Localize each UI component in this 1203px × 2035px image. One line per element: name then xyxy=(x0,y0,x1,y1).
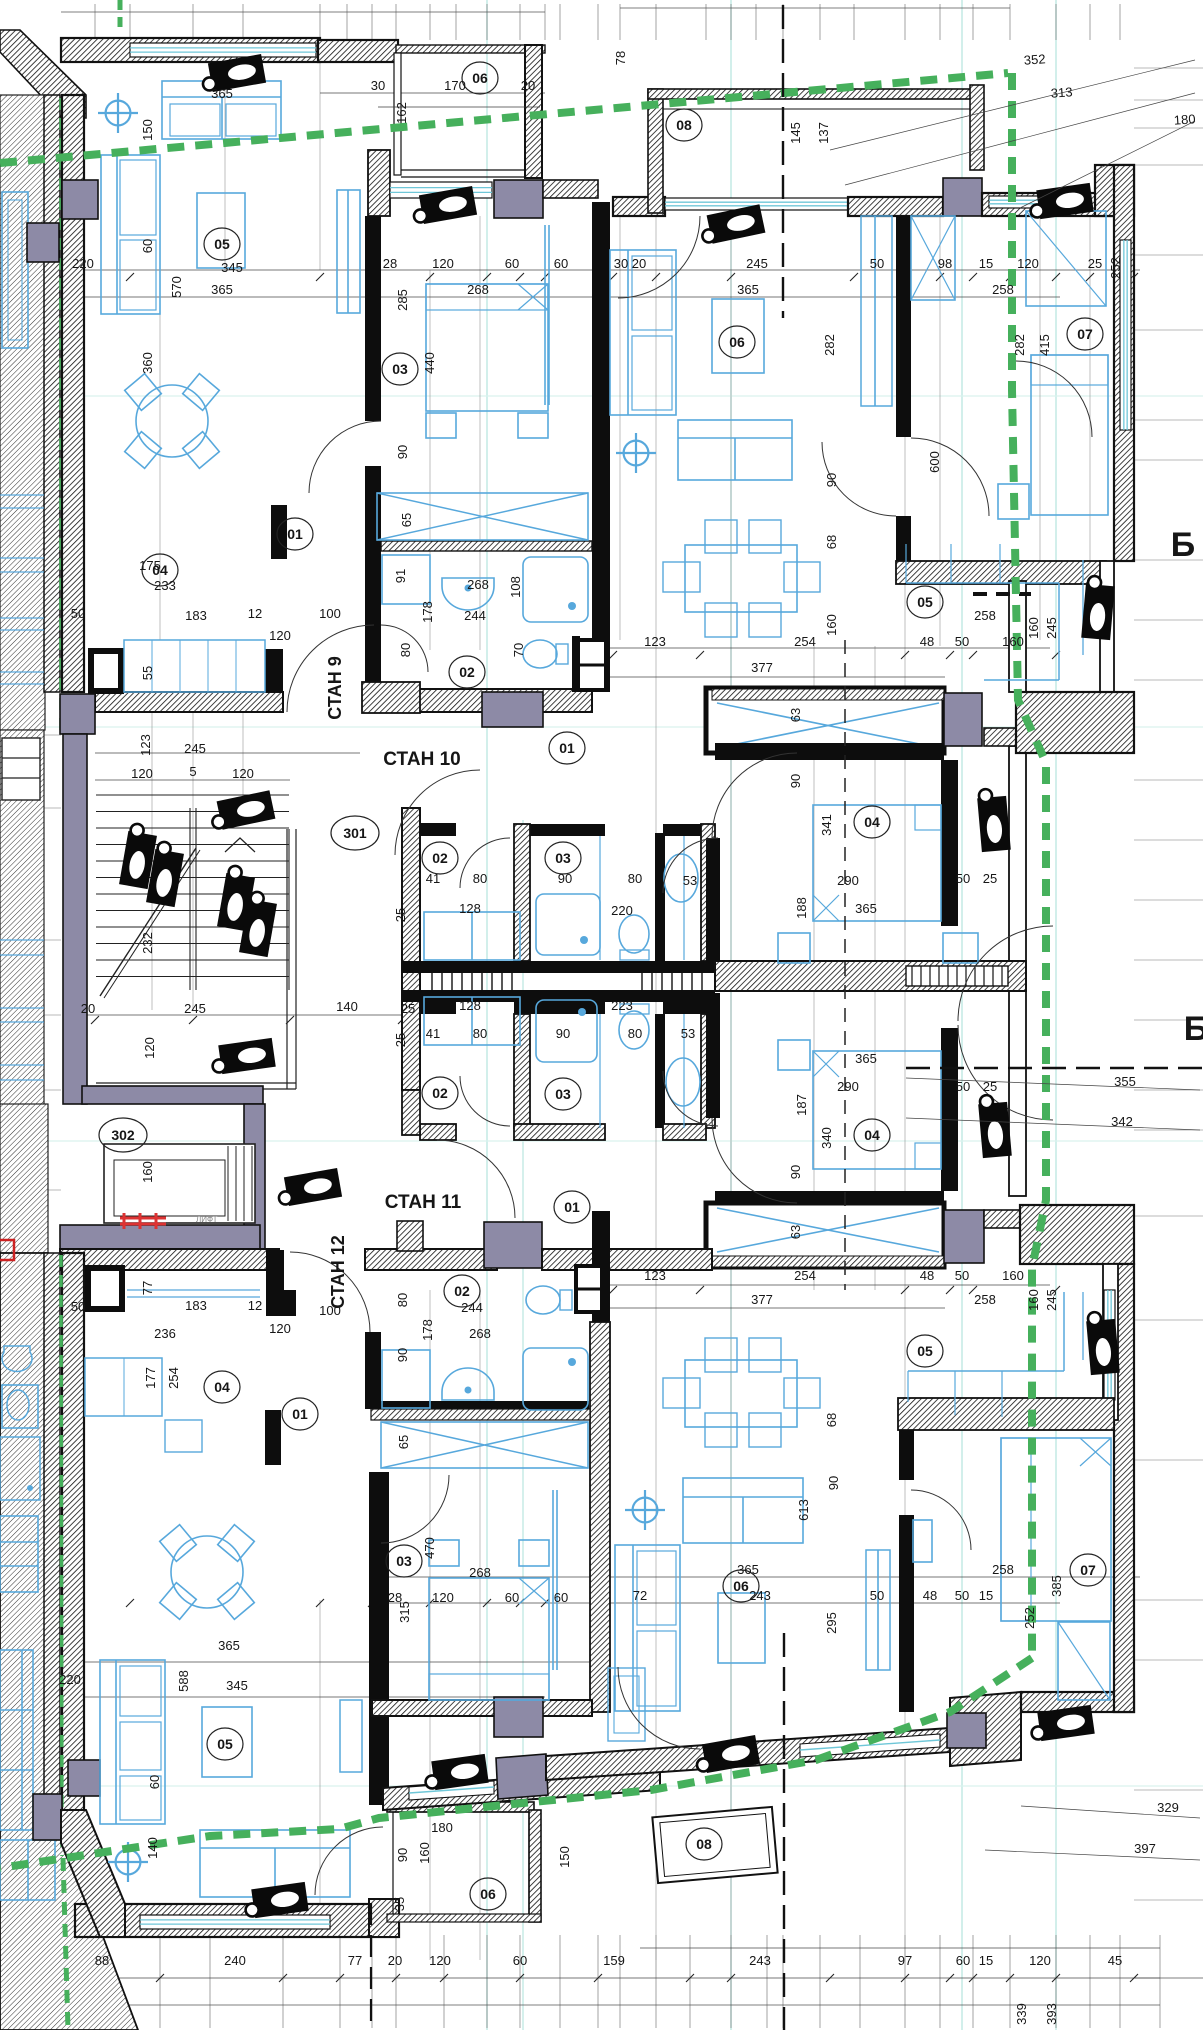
svg-text:70: 70 xyxy=(511,643,526,657)
svg-text:365: 365 xyxy=(737,1562,759,1577)
svg-text:245: 245 xyxy=(1044,1289,1059,1311)
svg-text:12: 12 xyxy=(248,606,262,621)
svg-text:02: 02 xyxy=(454,1283,470,1299)
svg-text:06: 06 xyxy=(733,1578,749,1594)
svg-text:295: 295 xyxy=(824,1612,839,1634)
svg-text:170: 170 xyxy=(444,78,466,93)
svg-text:06: 06 xyxy=(480,1886,496,1902)
svg-text:613: 613 xyxy=(796,1499,811,1521)
svg-text:СТАН 11: СТАН 11 xyxy=(385,1192,462,1213)
svg-text:48: 48 xyxy=(920,634,934,649)
svg-text:120: 120 xyxy=(1017,256,1039,271)
svg-text:65: 65 xyxy=(396,1435,411,1449)
svg-text:60: 60 xyxy=(554,256,568,271)
svg-text:108: 108 xyxy=(508,576,523,598)
svg-text:60: 60 xyxy=(554,1590,568,1605)
svg-text:220: 220 xyxy=(72,256,94,271)
svg-text:06: 06 xyxy=(472,70,488,86)
svg-text:302: 302 xyxy=(111,1127,135,1143)
svg-text:50: 50 xyxy=(955,1268,969,1283)
svg-text:90: 90 xyxy=(395,445,410,459)
svg-text:80: 80 xyxy=(398,643,413,657)
svg-text:90: 90 xyxy=(788,1165,803,1179)
svg-text:240: 240 xyxy=(224,1953,246,1968)
svg-text:06: 06 xyxy=(729,334,745,350)
svg-text:268: 268 xyxy=(467,577,489,592)
svg-text:08: 08 xyxy=(696,1836,712,1852)
svg-text:258: 258 xyxy=(974,608,996,623)
svg-text:20: 20 xyxy=(81,1001,95,1016)
svg-text:15: 15 xyxy=(979,256,993,271)
svg-text:01: 01 xyxy=(292,1406,308,1422)
svg-text:78: 78 xyxy=(613,51,628,65)
svg-text:98: 98 xyxy=(938,256,952,271)
svg-text:08: 08 xyxy=(676,117,692,133)
svg-text:05: 05 xyxy=(217,1736,233,1752)
svg-text:20: 20 xyxy=(388,1953,402,1968)
svg-text:07: 07 xyxy=(1077,326,1093,342)
svg-text:45: 45 xyxy=(1108,1953,1122,1968)
svg-text:150: 150 xyxy=(140,119,155,141)
svg-text:50: 50 xyxy=(870,1588,884,1603)
svg-text:282: 282 xyxy=(822,334,837,356)
svg-text:30: 30 xyxy=(371,78,385,93)
svg-text:04: 04 xyxy=(214,1379,230,1395)
svg-text:341: 341 xyxy=(819,814,834,836)
svg-text:140: 140 xyxy=(336,999,358,1014)
svg-text:345: 345 xyxy=(226,1678,248,1693)
svg-text:03: 03 xyxy=(555,1086,571,1102)
svg-text:68: 68 xyxy=(824,1413,839,1427)
svg-text:123: 123 xyxy=(138,734,153,756)
svg-text:245: 245 xyxy=(746,256,768,271)
svg-text:137: 137 xyxy=(816,122,831,144)
svg-text:25: 25 xyxy=(393,1033,408,1047)
svg-text:236: 236 xyxy=(154,1326,176,1341)
svg-text:123: 123 xyxy=(644,1268,666,1283)
svg-text:41: 41 xyxy=(426,1026,440,1041)
svg-text:254: 254 xyxy=(794,634,816,649)
svg-text:301: 301 xyxy=(343,825,367,841)
svg-text:150: 150 xyxy=(557,1846,572,1868)
svg-text:88: 88 xyxy=(95,1953,109,1968)
svg-text:377: 377 xyxy=(751,660,773,675)
svg-text:254: 254 xyxy=(794,1268,816,1283)
svg-text:СТАН 12: СТАН 12 xyxy=(328,1235,348,1308)
svg-text:55: 55 xyxy=(140,666,155,680)
svg-text:285: 285 xyxy=(395,289,410,311)
svg-text:90: 90 xyxy=(826,1476,841,1490)
svg-text:68: 68 xyxy=(824,535,839,549)
svg-text:377: 377 xyxy=(751,1292,773,1307)
svg-text:25: 25 xyxy=(1088,256,1102,271)
svg-text:01: 01 xyxy=(564,1199,580,1215)
svg-text:470: 470 xyxy=(422,1537,437,1559)
svg-text:244: 244 xyxy=(461,1300,483,1315)
svg-text:159: 159 xyxy=(603,1953,625,1968)
svg-text:252: 252 xyxy=(1022,1607,1037,1629)
svg-text:128: 128 xyxy=(459,998,481,1013)
svg-text:77: 77 xyxy=(140,1281,155,1295)
svg-text:120: 120 xyxy=(232,766,254,781)
svg-text:440: 440 xyxy=(422,352,437,374)
svg-text:80: 80 xyxy=(473,871,487,886)
svg-text:160: 160 xyxy=(824,614,839,636)
svg-text:232: 232 xyxy=(140,932,155,954)
svg-text:415: 415 xyxy=(1037,334,1052,356)
svg-text:04: 04 xyxy=(864,1127,880,1143)
svg-text:05: 05 xyxy=(214,236,230,252)
svg-text:15: 15 xyxy=(979,1588,993,1603)
svg-text:25: 25 xyxy=(983,871,997,886)
svg-text:187: 187 xyxy=(794,1094,809,1116)
svg-text:53: 53 xyxy=(681,1026,695,1041)
svg-text:160: 160 xyxy=(1002,634,1024,649)
svg-text:258: 258 xyxy=(974,1292,996,1307)
svg-text:Б: Б xyxy=(1184,1010,1203,1048)
svg-text:53: 53 xyxy=(683,873,697,888)
svg-text:258: 258 xyxy=(992,282,1014,297)
svg-text:ЛИФТ: ЛИФТ xyxy=(196,1215,218,1224)
svg-text:245: 245 xyxy=(1044,617,1059,639)
svg-text:02: 02 xyxy=(459,664,475,680)
svg-text:244: 244 xyxy=(464,608,486,623)
svg-text:352: 352 xyxy=(1023,51,1046,67)
svg-text:72: 72 xyxy=(633,1588,647,1603)
svg-text:01: 01 xyxy=(287,526,303,542)
svg-text:28: 28 xyxy=(383,256,397,271)
svg-text:329: 329 xyxy=(1157,1800,1179,1815)
svg-text:188: 188 xyxy=(794,897,809,919)
svg-text:СТАН 10: СТАН 10 xyxy=(383,749,461,770)
svg-text:223: 223 xyxy=(611,998,633,1013)
svg-text:90: 90 xyxy=(395,1848,410,1862)
svg-text:20: 20 xyxy=(521,78,535,93)
svg-text:90: 90 xyxy=(395,1348,410,1362)
svg-text:120: 120 xyxy=(131,766,153,781)
svg-text:100: 100 xyxy=(319,606,341,621)
svg-text:СТАН 9: СТАН 9 xyxy=(325,656,345,719)
svg-text:03: 03 xyxy=(396,1553,412,1569)
svg-text:50: 50 xyxy=(71,1299,85,1314)
svg-text:233: 233 xyxy=(154,578,176,593)
svg-text:120: 120 xyxy=(429,1953,451,1968)
svg-text:178: 178 xyxy=(420,601,435,623)
svg-text:60: 60 xyxy=(140,239,155,253)
svg-text:35: 35 xyxy=(392,1897,407,1911)
svg-text:162: 162 xyxy=(394,102,409,124)
svg-text:177: 177 xyxy=(143,1367,158,1389)
svg-text:254: 254 xyxy=(166,1367,181,1389)
svg-text:160: 160 xyxy=(417,1842,432,1864)
svg-text:243: 243 xyxy=(749,1588,771,1603)
svg-text:268: 268 xyxy=(469,1565,491,1580)
svg-text:313: 313 xyxy=(1050,84,1073,100)
svg-text:600: 600 xyxy=(927,451,942,473)
svg-text:02: 02 xyxy=(432,850,448,866)
svg-text:41: 41 xyxy=(426,871,440,886)
svg-text:183: 183 xyxy=(185,1298,207,1313)
svg-text:120: 120 xyxy=(269,628,291,643)
svg-text:90: 90 xyxy=(788,774,803,788)
svg-text:80: 80 xyxy=(473,1026,487,1041)
svg-text:268: 268 xyxy=(467,282,489,297)
svg-text:570: 570 xyxy=(169,276,184,298)
svg-text:245: 245 xyxy=(184,1001,206,1016)
svg-text:50: 50 xyxy=(71,606,85,621)
svg-text:120: 120 xyxy=(1029,1953,1051,1968)
svg-text:345: 345 xyxy=(221,260,243,275)
svg-text:220: 220 xyxy=(611,903,633,918)
svg-text:25: 25 xyxy=(393,908,408,922)
svg-text:268: 268 xyxy=(469,1326,491,1341)
svg-text:252: 252 xyxy=(1108,257,1123,279)
svg-text:05: 05 xyxy=(917,594,933,610)
svg-text:60: 60 xyxy=(147,1775,162,1789)
svg-text:60: 60 xyxy=(505,256,519,271)
svg-text:123: 123 xyxy=(644,634,666,649)
svg-text:91: 91 xyxy=(393,569,408,583)
svg-text:160: 160 xyxy=(1002,1268,1024,1283)
svg-text:175: 175 xyxy=(139,558,161,573)
svg-text:220: 220 xyxy=(59,1672,81,1687)
svg-text:120: 120 xyxy=(142,1037,157,1059)
svg-text:385: 385 xyxy=(1049,1575,1064,1597)
svg-text:90: 90 xyxy=(558,871,572,886)
svg-text:365: 365 xyxy=(855,1051,877,1066)
svg-text:12: 12 xyxy=(248,1298,262,1313)
svg-text:80: 80 xyxy=(395,1293,410,1307)
svg-text:360: 360 xyxy=(140,352,155,374)
svg-text:145: 145 xyxy=(788,122,803,144)
svg-text:48: 48 xyxy=(920,1268,934,1283)
svg-text:160: 160 xyxy=(140,1161,155,1183)
svg-text:90: 90 xyxy=(556,1026,570,1041)
svg-text:365: 365 xyxy=(737,282,759,297)
svg-text:120: 120 xyxy=(432,1590,454,1605)
svg-text:128: 128 xyxy=(459,901,481,916)
svg-text:97: 97 xyxy=(898,1953,912,1968)
svg-text:365: 365 xyxy=(211,86,233,101)
svg-text:282: 282 xyxy=(1012,334,1027,356)
svg-text:100: 100 xyxy=(319,1303,341,1318)
svg-text:50: 50 xyxy=(955,1588,969,1603)
svg-text:77: 77 xyxy=(348,1953,362,1968)
svg-text:03: 03 xyxy=(555,850,571,866)
svg-text:65: 65 xyxy=(399,513,414,527)
svg-text:120: 120 xyxy=(432,256,454,271)
svg-text:50: 50 xyxy=(956,1079,970,1094)
svg-text:365: 365 xyxy=(855,901,877,916)
svg-text:160: 160 xyxy=(1026,617,1041,639)
svg-text:180: 180 xyxy=(431,1820,453,1835)
svg-text:25: 25 xyxy=(401,1001,415,1016)
svg-text:50: 50 xyxy=(956,871,970,886)
svg-text:315: 315 xyxy=(397,1601,412,1623)
svg-text:290: 290 xyxy=(837,873,859,888)
svg-text:02: 02 xyxy=(432,1085,448,1101)
svg-text:588: 588 xyxy=(176,1670,191,1692)
svg-text:183: 183 xyxy=(185,608,207,623)
svg-text:140: 140 xyxy=(145,1837,160,1859)
svg-text:60: 60 xyxy=(505,1590,519,1605)
svg-text:397: 397 xyxy=(1134,1841,1156,1856)
svg-text:63: 63 xyxy=(788,708,803,722)
svg-text:258: 258 xyxy=(992,1562,1014,1577)
svg-text:15: 15 xyxy=(979,1953,993,1968)
svg-text:120: 120 xyxy=(269,1321,291,1336)
svg-text:50: 50 xyxy=(870,256,884,271)
svg-text:243: 243 xyxy=(749,1953,771,1968)
svg-text:07: 07 xyxy=(1080,1562,1096,1578)
svg-text:290: 290 xyxy=(837,1079,859,1094)
svg-text:01: 01 xyxy=(559,740,575,756)
svg-text:80: 80 xyxy=(628,871,642,886)
svg-text:Б: Б xyxy=(1171,526,1195,564)
svg-text:245: 245 xyxy=(184,741,206,756)
svg-text:160: 160 xyxy=(1026,1289,1041,1311)
svg-text:180: 180 xyxy=(1173,111,1196,127)
svg-text:05: 05 xyxy=(917,1343,933,1359)
svg-text:5: 5 xyxy=(189,764,196,779)
svg-text:365: 365 xyxy=(211,282,233,297)
svg-text:178: 178 xyxy=(420,1319,435,1341)
svg-text:393: 393 xyxy=(1044,2003,1059,2025)
svg-text:04: 04 xyxy=(864,814,880,830)
svg-text:60: 60 xyxy=(513,1953,527,1968)
svg-text:03: 03 xyxy=(392,361,408,377)
svg-text:60: 60 xyxy=(956,1953,970,1968)
svg-text:30 20: 30 20 xyxy=(614,256,647,271)
svg-text:90: 90 xyxy=(824,473,839,487)
svg-text:50: 50 xyxy=(955,634,969,649)
svg-text:80: 80 xyxy=(628,1026,642,1041)
svg-text:365: 365 xyxy=(218,1638,240,1653)
svg-text:63: 63 xyxy=(788,1225,803,1239)
svg-text:339: 339 xyxy=(1014,2003,1029,2025)
svg-text:48: 48 xyxy=(923,1588,937,1603)
svg-text:340: 340 xyxy=(819,1127,834,1149)
